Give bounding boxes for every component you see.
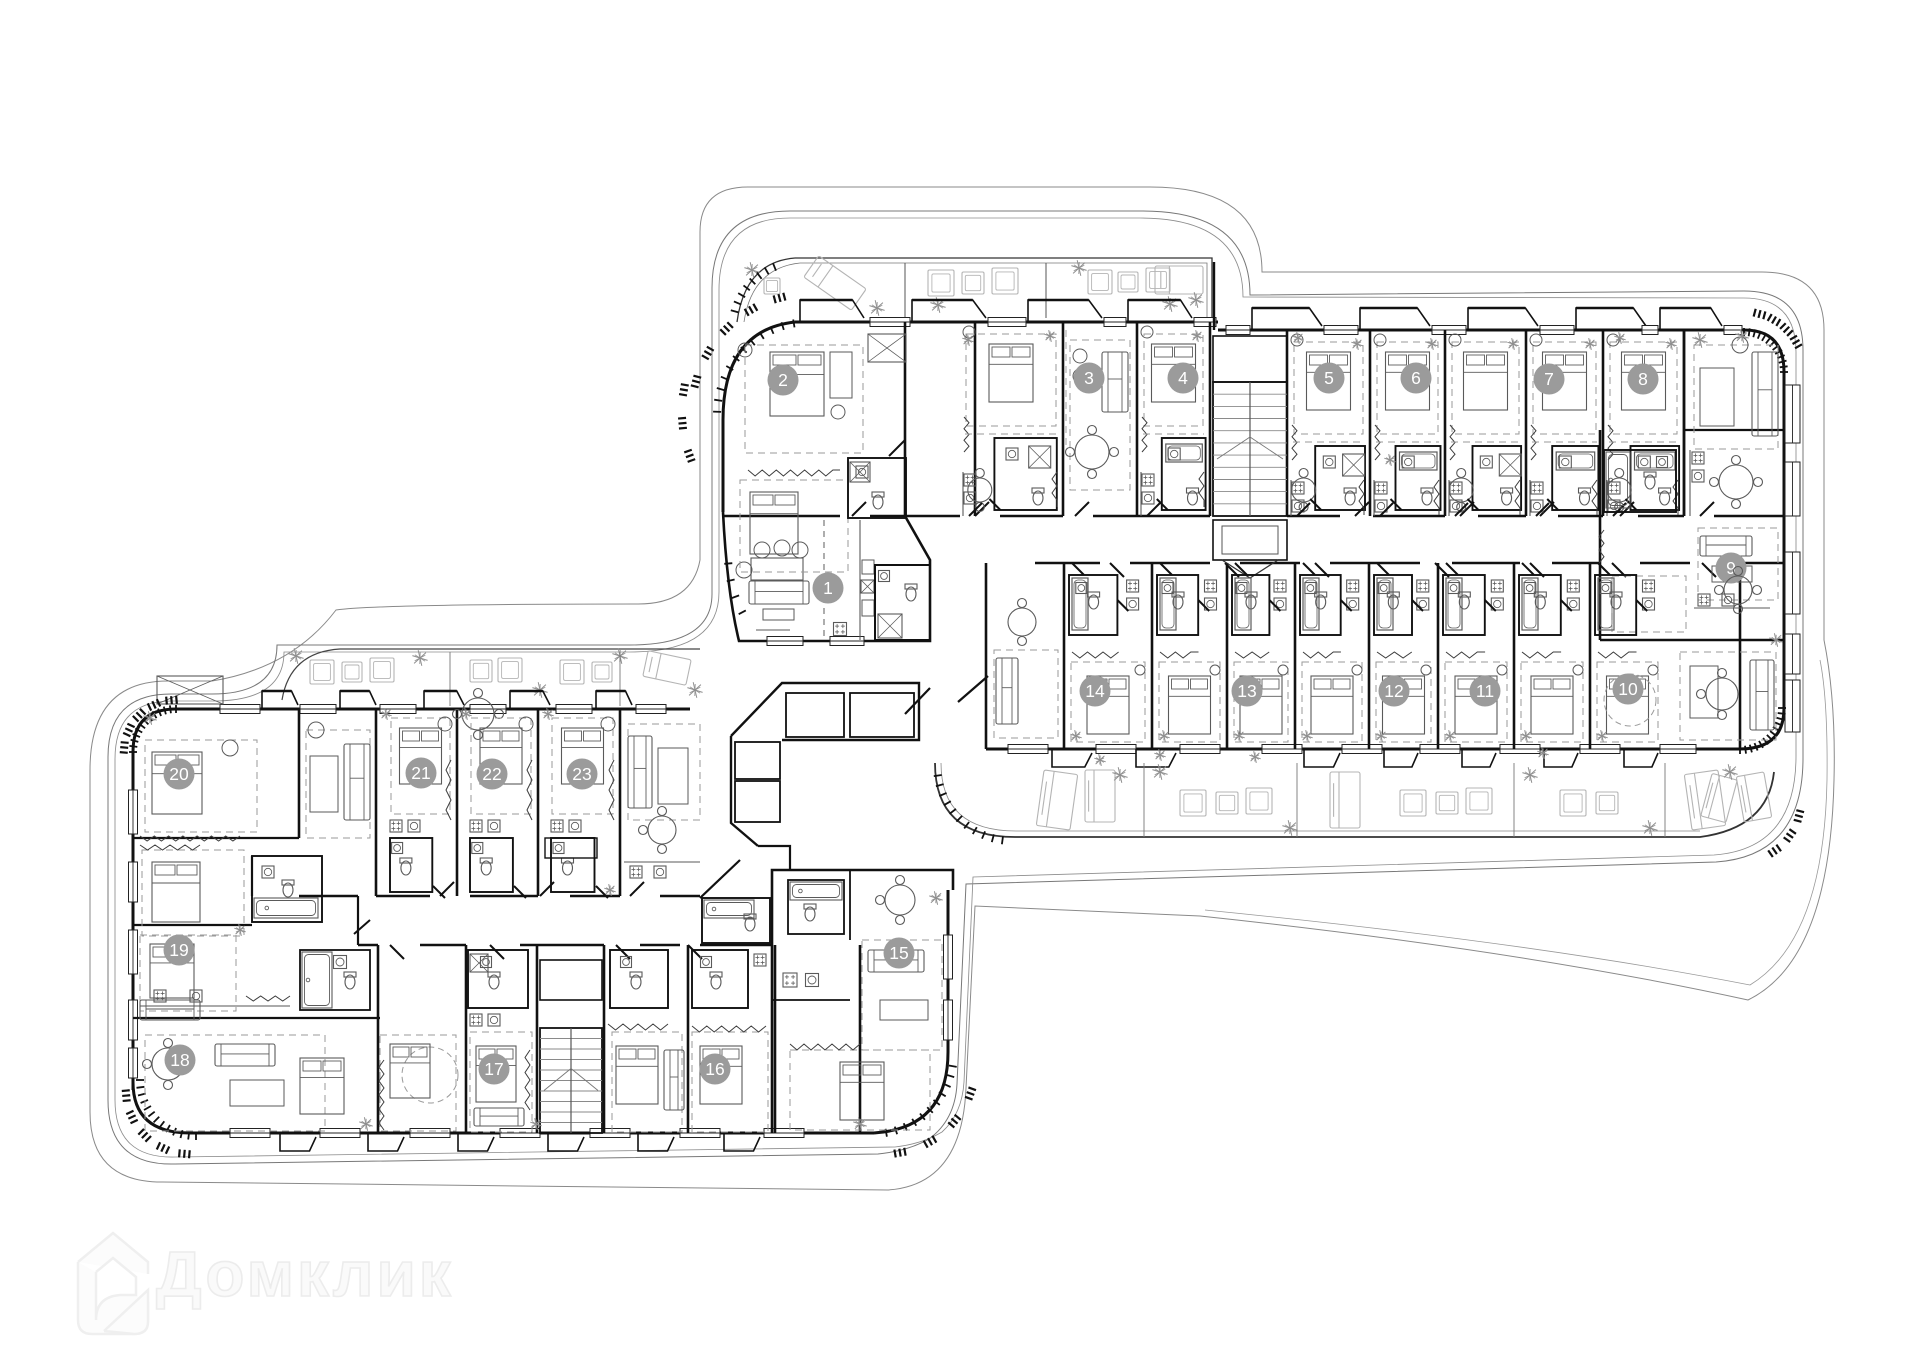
svg-text:21: 21 bbox=[411, 763, 430, 783]
svg-text:15: 15 bbox=[889, 943, 908, 963]
svg-text:17: 17 bbox=[484, 1059, 503, 1079]
svg-text:12: 12 bbox=[1384, 681, 1403, 701]
svg-text:19: 19 bbox=[169, 940, 188, 960]
svg-text:4: 4 bbox=[1178, 368, 1188, 388]
svg-text:7: 7 bbox=[1544, 369, 1554, 389]
svg-text:14: 14 bbox=[1085, 681, 1105, 701]
svg-text:10: 10 bbox=[1618, 679, 1638, 699]
svg-text:Домклик: Домклик bbox=[156, 1238, 454, 1310]
svg-text:1: 1 bbox=[823, 578, 833, 598]
svg-text:16: 16 bbox=[705, 1059, 724, 1079]
svg-text:22: 22 bbox=[482, 764, 501, 784]
svg-text:13: 13 bbox=[1237, 681, 1256, 701]
svg-text:18: 18 bbox=[170, 1050, 189, 1070]
svg-text:2: 2 bbox=[778, 370, 788, 390]
svg-text:11: 11 bbox=[1476, 681, 1494, 701]
svg-text:20: 20 bbox=[169, 764, 189, 784]
svg-text:3: 3 bbox=[1084, 368, 1094, 388]
svg-text:5: 5 bbox=[1324, 368, 1334, 388]
svg-text:6: 6 bbox=[1411, 368, 1421, 388]
svg-text:8: 8 bbox=[1638, 369, 1648, 389]
svg-text:23: 23 bbox=[572, 764, 591, 784]
